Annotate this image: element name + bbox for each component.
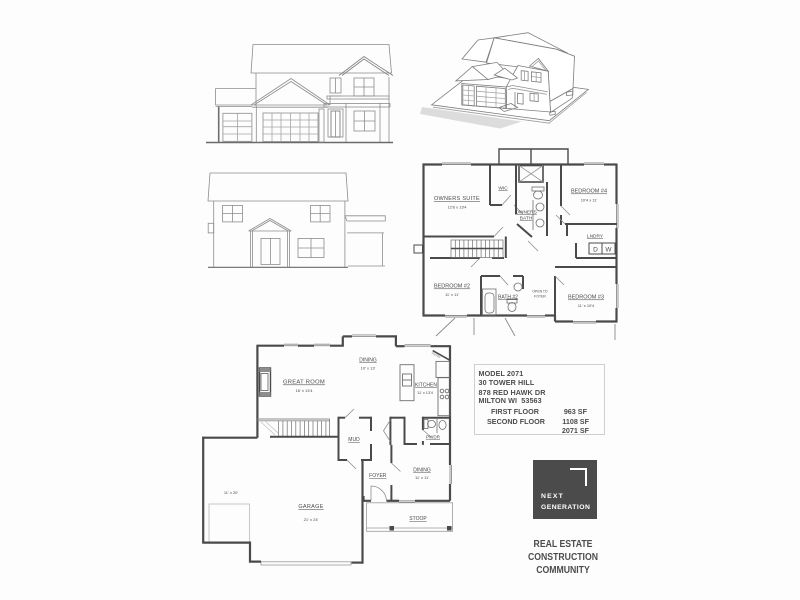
svg-text:OPEN TO: OPEN TO	[532, 290, 547, 294]
svg-text:DINING: DINING	[413, 468, 431, 474]
svg-text:11' x 11': 11' x 11'	[415, 475, 429, 480]
svg-text:BATH #2: BATH #2	[498, 295, 518, 301]
svg-text:11' x 20': 11' x 20'	[224, 490, 239, 495]
svg-text:LNDRY: LNDRY	[587, 234, 604, 240]
svg-text:W: W	[605, 247, 612, 254]
svg-text:GARAGE: GARAGE	[298, 504, 323, 510]
svg-text:11' x 10'4: 11' x 10'4	[578, 303, 595, 308]
svg-text:BATH: BATH	[520, 216, 533, 222]
svg-text:11' x 11': 11' x 11'	[445, 292, 459, 297]
svg-text:KITCHEN: KITCHEN	[415, 383, 437, 389]
svg-text:12'8 x 13'4: 12'8 x 13'4	[447, 205, 467, 210]
svg-text:FOYER: FOYER	[534, 295, 546, 299]
svg-text:BEDROOM #4: BEDROOM #4	[571, 189, 607, 195]
svg-text:10'4 x 11': 10'4 x 11'	[581, 198, 598, 203]
svg-text:21' x 24': 21' x 24'	[304, 517, 319, 522]
svg-text:STOOP: STOOP	[409, 516, 427, 522]
svg-text:PWDR: PWDR	[426, 435, 441, 440]
svg-text:10' x 13': 10' x 13'	[361, 366, 376, 371]
svg-text:GREAT ROOM: GREAT ROOM	[283, 380, 325, 386]
svg-text:OWNERS SUITE: OWNERS SUITE	[434, 196, 480, 202]
svg-text:16' x 13'4: 16' x 13'4	[296, 388, 314, 393]
svg-text:WIC: WIC	[498, 186, 508, 192]
svg-text:PNTRY: PNTRY	[431, 351, 442, 359]
svg-text:FOYER: FOYER	[369, 473, 387, 479]
svg-text:BEDROOM #2: BEDROOM #2	[434, 284, 470, 290]
svg-text:MUD: MUD	[348, 437, 360, 443]
svg-text:OWNERS: OWNERS	[515, 210, 537, 216]
svg-text:DINING: DINING	[359, 358, 377, 364]
svg-text:11' x 13'4: 11' x 13'4	[417, 391, 433, 395]
svg-text:D: D	[593, 247, 598, 254]
svg-text:BEDROOM #3: BEDROOM #3	[568, 295, 604, 301]
